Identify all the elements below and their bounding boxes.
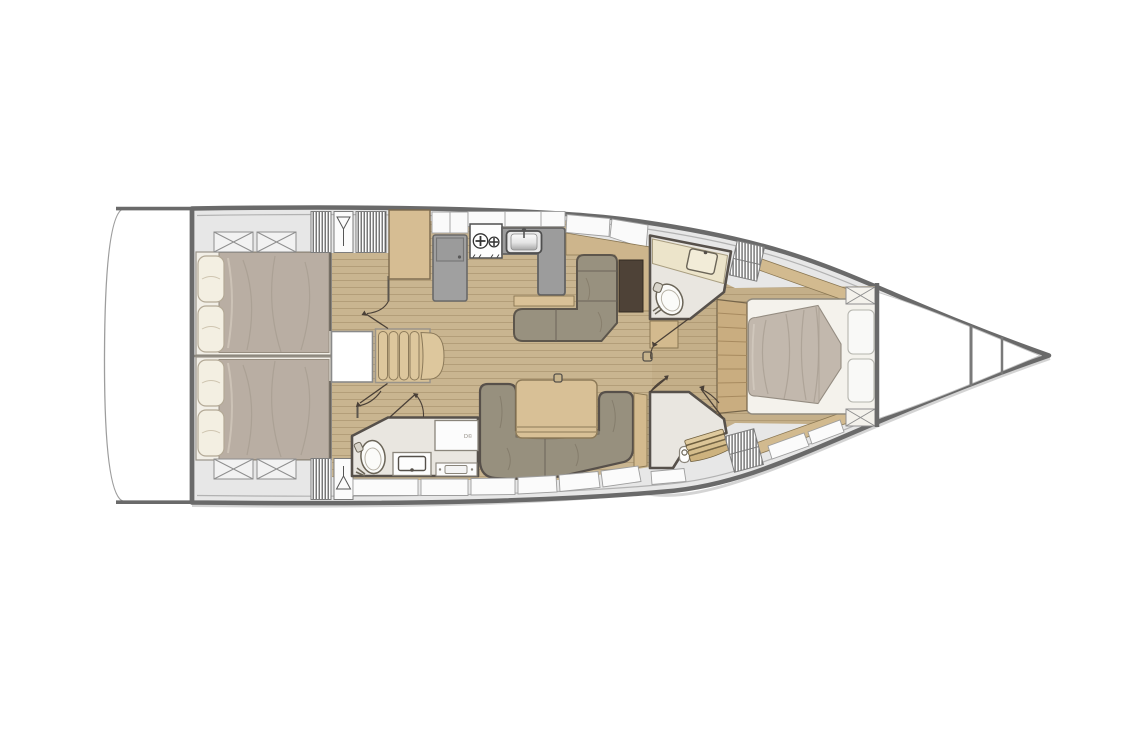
svg-text:D©: D© xyxy=(464,433,472,440)
